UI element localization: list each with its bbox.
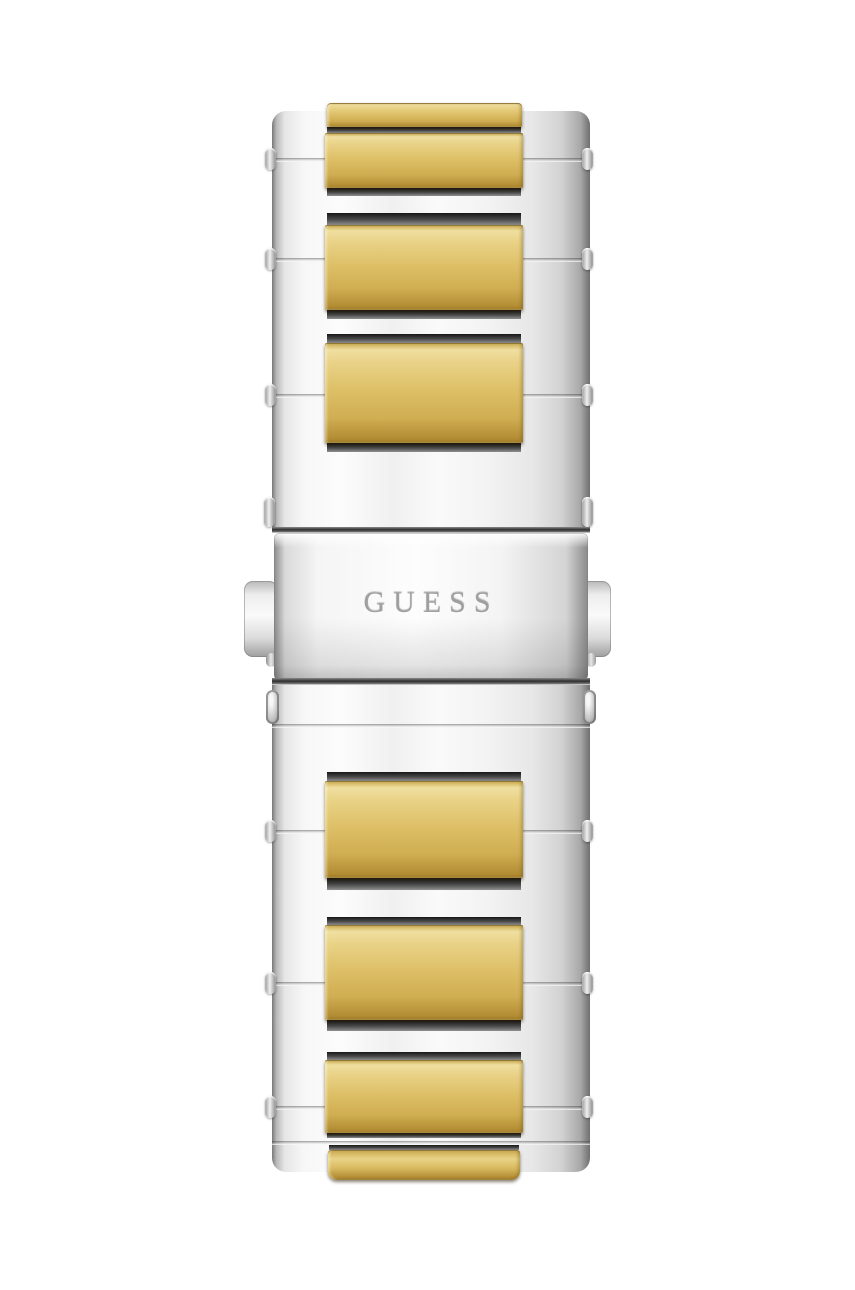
link-joint-bump xyxy=(582,1096,593,1118)
hinge-ring xyxy=(583,690,596,724)
link-recess xyxy=(327,213,521,225)
gold-link-2 xyxy=(325,225,523,310)
link-joint-bump xyxy=(582,248,593,270)
link-joint-bump xyxy=(582,384,593,406)
link-seam xyxy=(272,724,590,728)
clasp-bottom-edge xyxy=(272,678,590,685)
link-joint-bump xyxy=(265,148,276,170)
gold-link-top-partial xyxy=(327,103,522,127)
gold-link-3 xyxy=(325,343,523,443)
link-recess xyxy=(327,443,521,452)
link-recess xyxy=(327,878,521,890)
gold-link-6 xyxy=(325,1060,523,1133)
link-joint-bump xyxy=(582,148,593,170)
link-joint-bump xyxy=(265,248,276,270)
link-joint-bump xyxy=(265,820,276,842)
link-joint-bump xyxy=(582,820,593,842)
link-recess xyxy=(327,188,521,196)
gold-link-1 xyxy=(325,133,523,188)
link-recess xyxy=(327,334,521,343)
link-joint-bump xyxy=(582,972,593,994)
brand-engraving: GUESS xyxy=(274,588,588,618)
link-recess xyxy=(327,917,521,925)
clasp-cover: GUESS xyxy=(274,533,588,680)
clasp-pusher-left xyxy=(244,581,278,657)
link-joint-bump xyxy=(265,384,276,406)
link-recess xyxy=(327,310,521,319)
link-recess xyxy=(327,1052,521,1060)
link-recess xyxy=(327,1133,521,1138)
gold-link-4 xyxy=(325,781,523,878)
link-recess xyxy=(327,772,521,781)
clasp-hinge-bump xyxy=(582,497,593,527)
link-joint-bump xyxy=(265,972,276,994)
link-recess xyxy=(327,1020,521,1031)
hinge-ring xyxy=(266,690,279,724)
gold-link-5 xyxy=(325,925,523,1020)
link-joint-bump xyxy=(265,1096,276,1118)
clasp-hinge-bump xyxy=(264,497,275,527)
gold-link-bottom-partial xyxy=(328,1150,520,1180)
product-photo-watch-bracelet: GUESS xyxy=(0,0,855,1290)
